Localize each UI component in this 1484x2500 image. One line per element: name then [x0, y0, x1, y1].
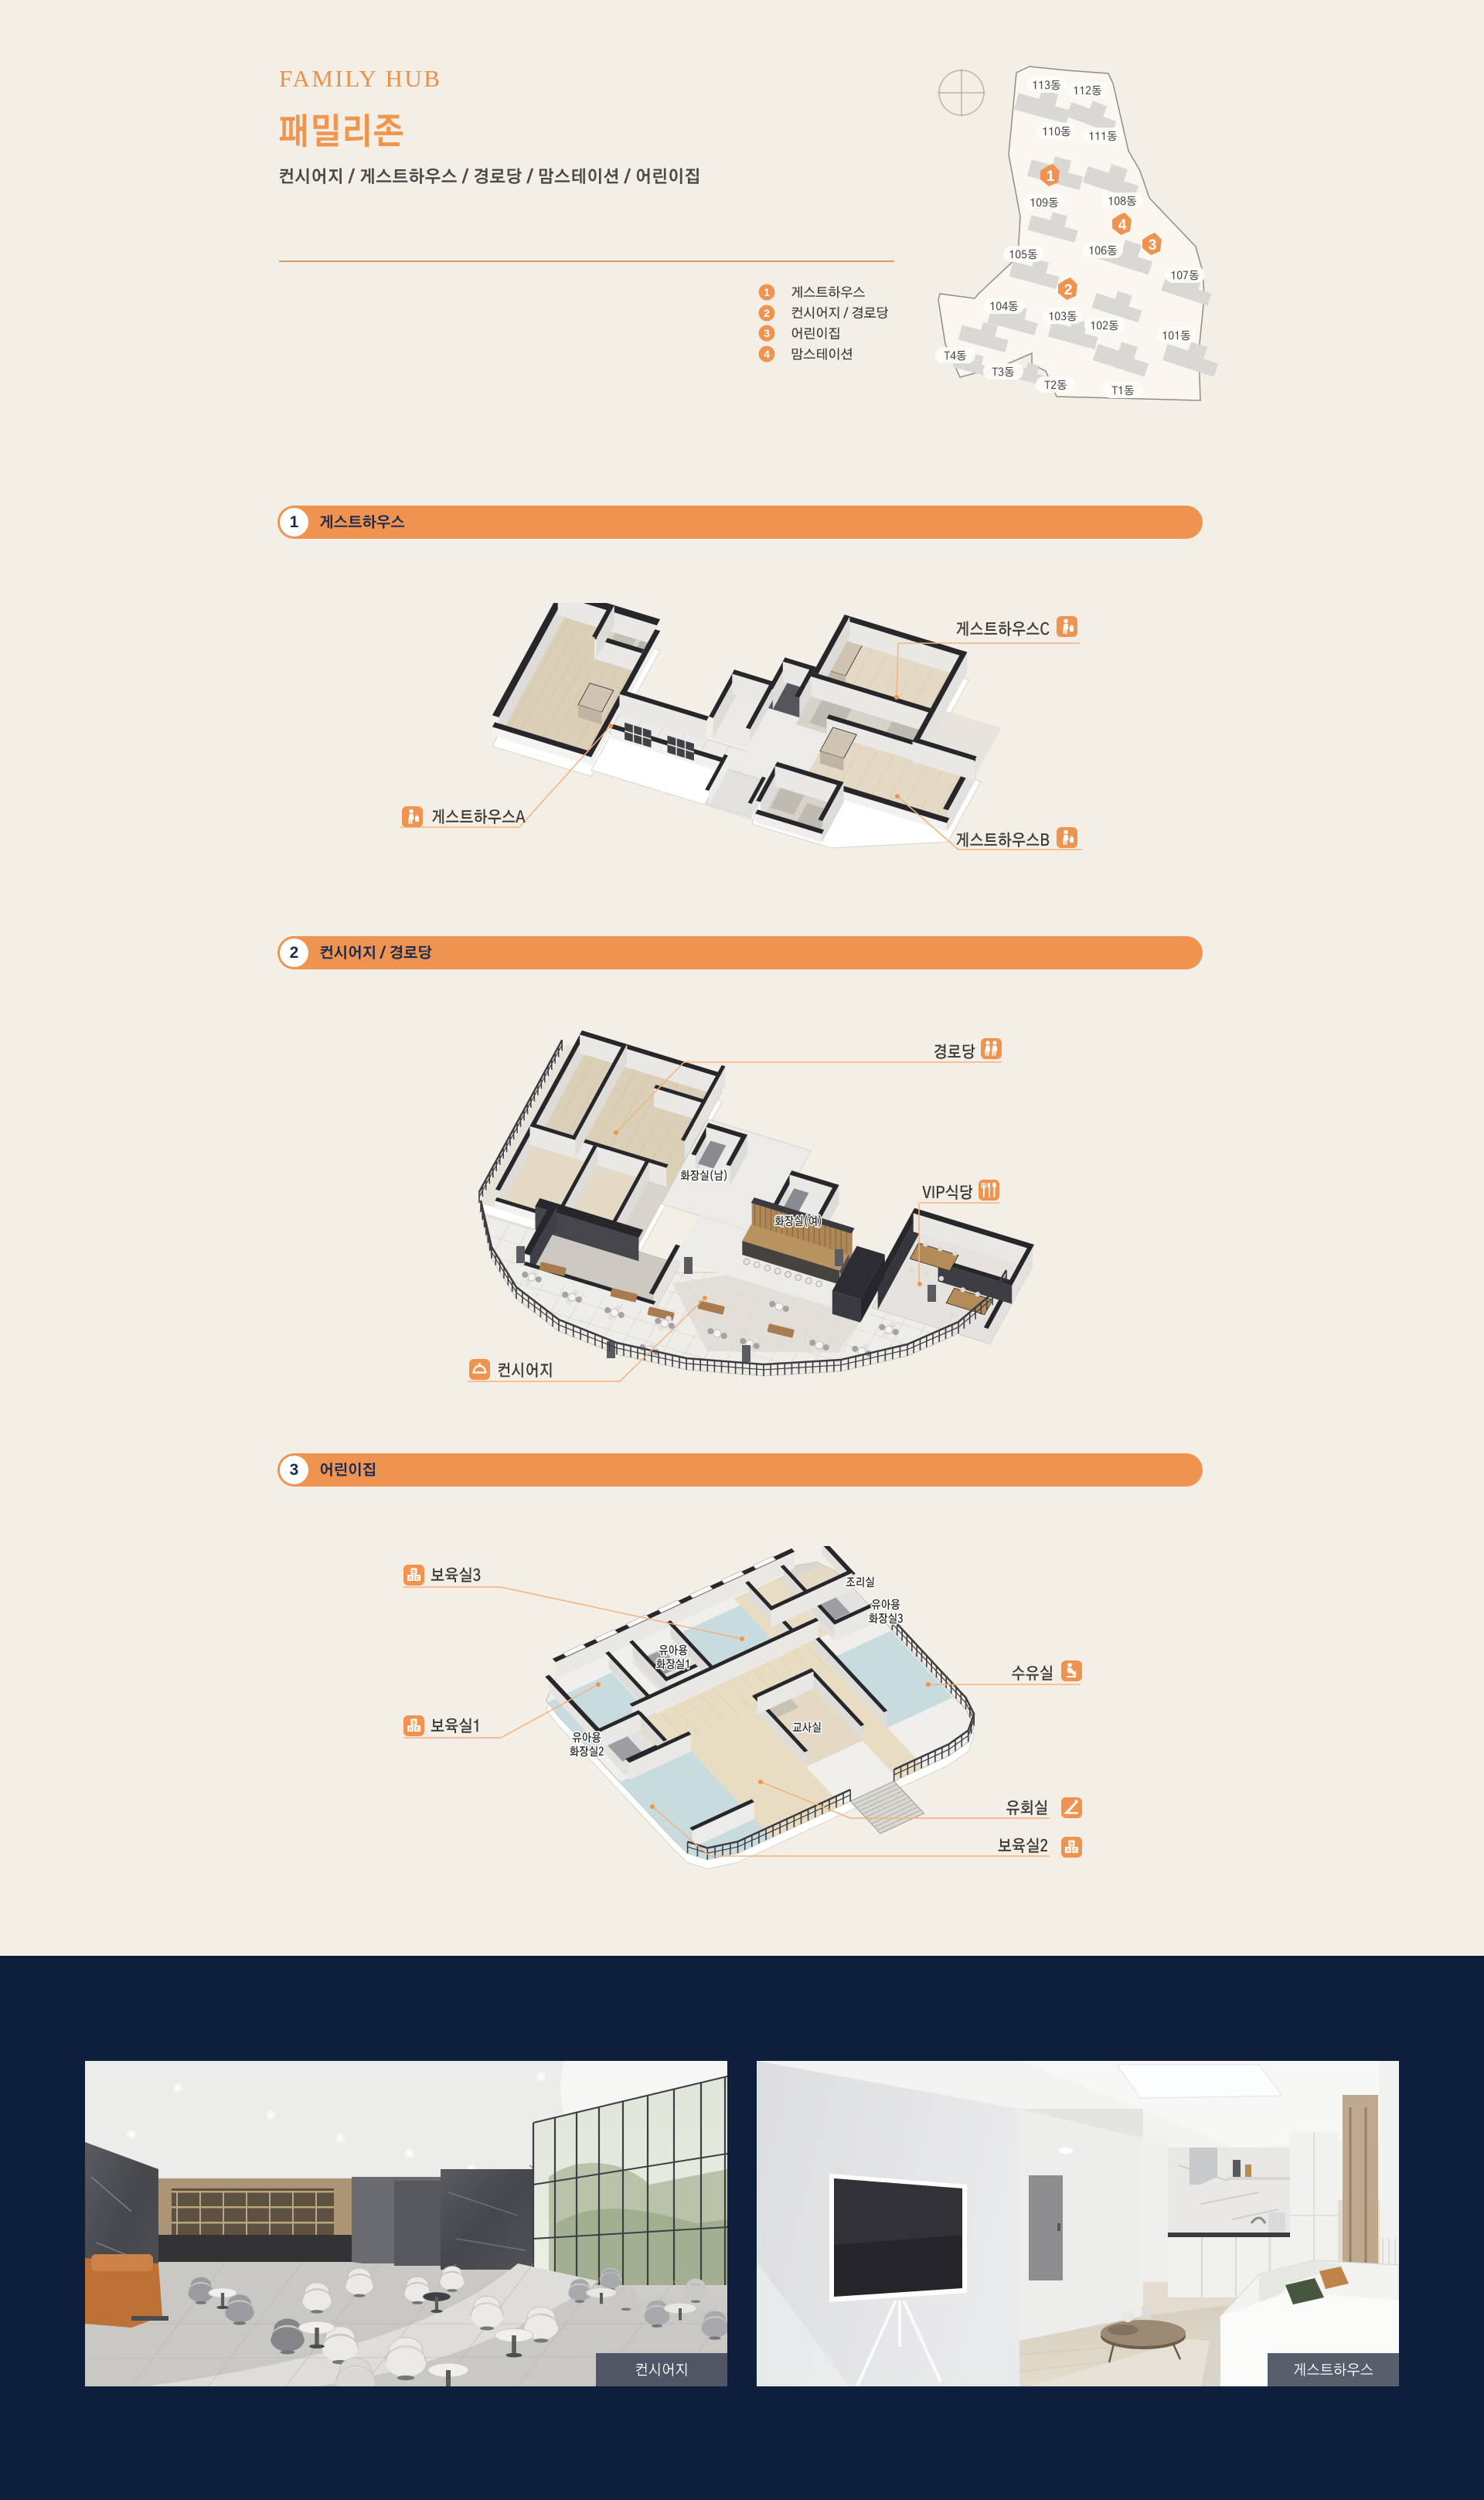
svg-text:A: A: [1067, 1848, 1070, 1854]
svg-text:B: B: [412, 1720, 416, 1725]
svg-text:4: 4: [764, 348, 770, 360]
svg-text:C: C: [416, 1727, 420, 1732]
svg-text:4: 4: [1118, 217, 1127, 233]
svg-text:B: B: [1070, 1841, 1074, 1847]
svg-text:1: 1: [764, 286, 770, 298]
svg-text:B: B: [412, 1569, 416, 1575]
svg-text:1: 1: [1047, 169, 1055, 185]
svg-text:A: A: [409, 1576, 413, 1582]
svg-text:2: 2: [1064, 282, 1073, 298]
svg-text:C: C: [1074, 1848, 1077, 1854]
svg-text:2: 2: [764, 307, 770, 319]
svg-text:C: C: [416, 1576, 420, 1582]
svg-text:A: A: [409, 1727, 413, 1732]
svg-text:3: 3: [764, 327, 770, 339]
svg-text:3: 3: [1149, 237, 1157, 254]
